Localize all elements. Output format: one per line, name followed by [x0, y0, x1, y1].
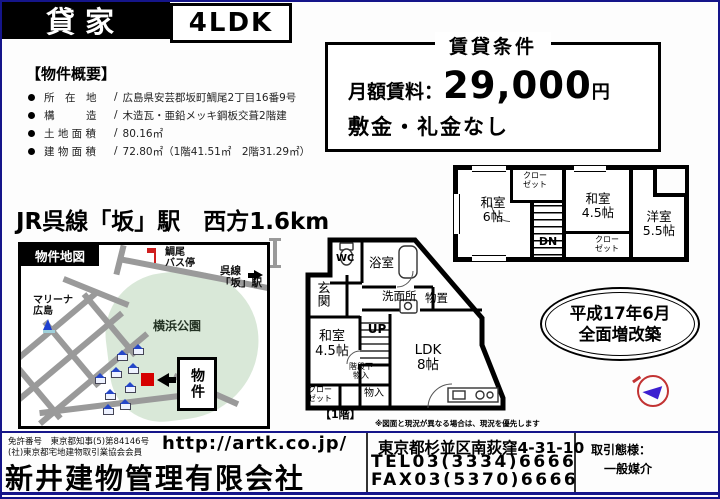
closet-1f: クロー ゼット [301, 386, 339, 404]
house-icon [125, 386, 136, 393]
phone-number: TEL03(3334)6666 [371, 452, 576, 472]
bullet-icon [28, 94, 35, 101]
window [574, 165, 606, 172]
window [472, 165, 506, 172]
bullet-icon [28, 148, 35, 155]
stairs-up-label: UP [364, 323, 390, 336]
room-size: 5.5帖 [632, 224, 686, 238]
row-separator: / [114, 145, 118, 157]
house-icon [117, 354, 128, 361]
room-washitsu6: 和室 6帖 [460, 196, 526, 224]
bus-stop-line1: 鯛尾 [165, 247, 195, 258]
overview-row-location: 所 在 地 / 広島県安芸郡坂町鯛尾2丁目16番9号 [28, 88, 310, 106]
row-value: 80.16㎡ [123, 126, 164, 141]
bus-stop-line2: バス停 [165, 258, 195, 269]
row-label: 構 造 [44, 108, 112, 123]
room-washitsu45: 和室 4.5帖 [567, 192, 629, 220]
rental-flyer: 貸家 4LDK 【物件概要】 所 在 地 / 広島県安芸郡坂町鯛尾2丁目16番9… [0, 0, 720, 499]
closet-top: クロー ゼット [513, 172, 557, 190]
renovation-badge: 平成17年6月 全面増改築 [540, 287, 700, 361]
understair-storage: 階段下 物入 [343, 363, 379, 381]
row-separator: / [114, 127, 118, 139]
bathtub-icon [399, 246, 417, 278]
room-wc: WC [336, 253, 354, 264]
room-name: 洋室 [632, 210, 686, 224]
rail-bar [273, 238, 277, 268]
property-type-banner: 貸家 [0, 0, 170, 39]
disclaimer-note: ※図面と現況が異なる場合は、現況を優先します [375, 420, 540, 428]
closet-line2: ゼット [584, 245, 630, 254]
row-label: 土 地 面 積 [44, 126, 112, 141]
room-entrance: 玄関 [314, 281, 329, 307]
room-name: 和室 [306, 330, 358, 345]
rent-label: 月額賃料： [348, 77, 443, 104]
compass-needle [642, 380, 664, 402]
rent-conditions-box: 賃貸条件 月額賃料： 29,000 円 敷金・礼金なし [325, 42, 661, 152]
room-name: 和室 [460, 196, 526, 210]
kitchen-sink-icon [453, 391, 465, 399]
wall-notch [653, 169, 685, 197]
layout-label: 4LDK [189, 8, 273, 38]
bus-stop-flag-icon [154, 248, 156, 263]
stairs-dn-label: DN [534, 236, 562, 248]
marina-label: マリーナ 広島 [33, 295, 73, 317]
park-label: 横浜公園 [153, 317, 201, 334]
row-label: 建 物 面 積 [44, 144, 112, 159]
room-storage: 物置 [425, 292, 448, 305]
room-name: LDK [402, 343, 454, 358]
marina-line2: 広島 [33, 306, 73, 317]
room-size: 6帖 [460, 210, 526, 224]
property-callout: 物件 [177, 357, 217, 411]
floor1-caption: 【1階】 [320, 409, 361, 421]
footer-vertical-divider [366, 433, 368, 492]
overview-row-building-area: 建 物 面 積 / 72.80㎡（1階41.51㎡ 2階31.29㎡） [28, 142, 310, 160]
room-size: 4.5帖 [567, 206, 629, 220]
monthly-rent-line: 月額賃料： 29,000 円 [348, 67, 610, 104]
label-line2: 物入 [343, 372, 379, 381]
closet-bottom: クロー ゼット [584, 236, 630, 254]
company-name: 新井建物管理有限会社 [5, 457, 305, 497]
room-name: 和室 [567, 192, 629, 206]
closet-line2: ゼット [513, 181, 557, 190]
deal-type-value: 一般媒介 [604, 460, 652, 477]
overview-title: 【物件概要】 [26, 63, 116, 84]
fax-number: FAX03(5370)6666 [371, 470, 578, 490]
row-separator: / [114, 91, 118, 103]
row-value: 広島県安芸郡坂町鯛尾2丁目16番9号 [123, 90, 297, 105]
sailboat-icon [43, 319, 55, 333]
row-label: 所 在 地 [44, 90, 112, 105]
map-title: 物件地図 [21, 245, 99, 266]
stove-icon [487, 392, 493, 398]
property-type-label: 貸家 [46, 0, 124, 41]
left-arrow-icon [157, 373, 169, 387]
row-separator: / [114, 109, 118, 121]
house-icon [105, 393, 116, 400]
room-monoire: 物入 [364, 388, 384, 399]
renovation-line1: 平成17年6月 [570, 303, 670, 324]
window [472, 255, 506, 262]
overview-list: 所 在 地 / 広島県安芸郡坂町鯛尾2丁目16番9号 構 造 / 木造瓦・亜鉛メ… [28, 88, 310, 160]
deposit-note: 敷金・礼金なし [348, 111, 509, 141]
house-icon [133, 348, 144, 355]
house-icon [120, 403, 131, 410]
row-value: 72.80㎡（1階41.51㎡ 2階31.29㎡） [123, 144, 311, 159]
footer-divider [0, 431, 720, 433]
window [453, 194, 460, 234]
renovation-line2: 全面増改築 [570, 324, 670, 345]
stove-icon [476, 391, 484, 399]
room-size: 4.5帖 [306, 345, 358, 360]
stairs-down [534, 205, 562, 260]
room-size: 8帖 [402, 358, 454, 373]
overview-row-structure: 構 造 / 木造瓦・亜鉛メッキ鋼板交葺2階建 [28, 106, 310, 124]
rent-amount: 29,000 [443, 67, 592, 104]
deal-type-label: 取引態様： [591, 441, 651, 458]
room-bath: 浴室 [369, 256, 394, 270]
bus-stop-label: 鯛尾 バス停 [165, 247, 195, 269]
rail-line-marker-icon [269, 238, 281, 268]
rent-unit: 円 [592, 78, 610, 104]
compass-tick [632, 376, 641, 383]
house-icon [103, 408, 114, 415]
house-icon [111, 371, 122, 378]
wall [562, 170, 566, 262]
house-icon [128, 367, 139, 374]
house-icon [95, 377, 106, 384]
label-line2: ゼット [301, 395, 339, 404]
row-value: 木造瓦・亜鉛メッキ鋼板交葺2階建 [123, 108, 287, 123]
room-washroom: 洗面所 [382, 290, 417, 303]
wall [566, 231, 629, 234]
room-yoshitsu: 洋室 5.5帖 [632, 210, 686, 238]
bullet-icon [28, 112, 35, 119]
overview-row-land-area: 土 地 面 積 / 80.16㎡ [28, 124, 310, 142]
red-square-marker [141, 373, 154, 386]
right-arrow-icon [254, 270, 263, 280]
rent-conditions-title: 賃貸条件 [435, 32, 551, 59]
property-map: 物件地図 横浜公園 鯛尾 バス停 呉線 「坂」駅 マリーナ [18, 242, 270, 429]
rail-cap [269, 265, 281, 268]
north-arrow-icon [637, 375, 669, 407]
room-ldk: LDK 8帖 [402, 343, 454, 373]
website-url: http://artk.co.jp/ [162, 433, 347, 454]
room-washitsu45-1f: 和室 4.5帖 [306, 330, 358, 359]
layout-badge: 4LDK [170, 3, 292, 43]
marina-line1: マリーナ [33, 295, 73, 306]
bullet-icon [28, 130, 35, 137]
station-access: JR呉線「坂」駅 西方1.6km [16, 202, 329, 236]
washbasin-icon [405, 303, 412, 310]
